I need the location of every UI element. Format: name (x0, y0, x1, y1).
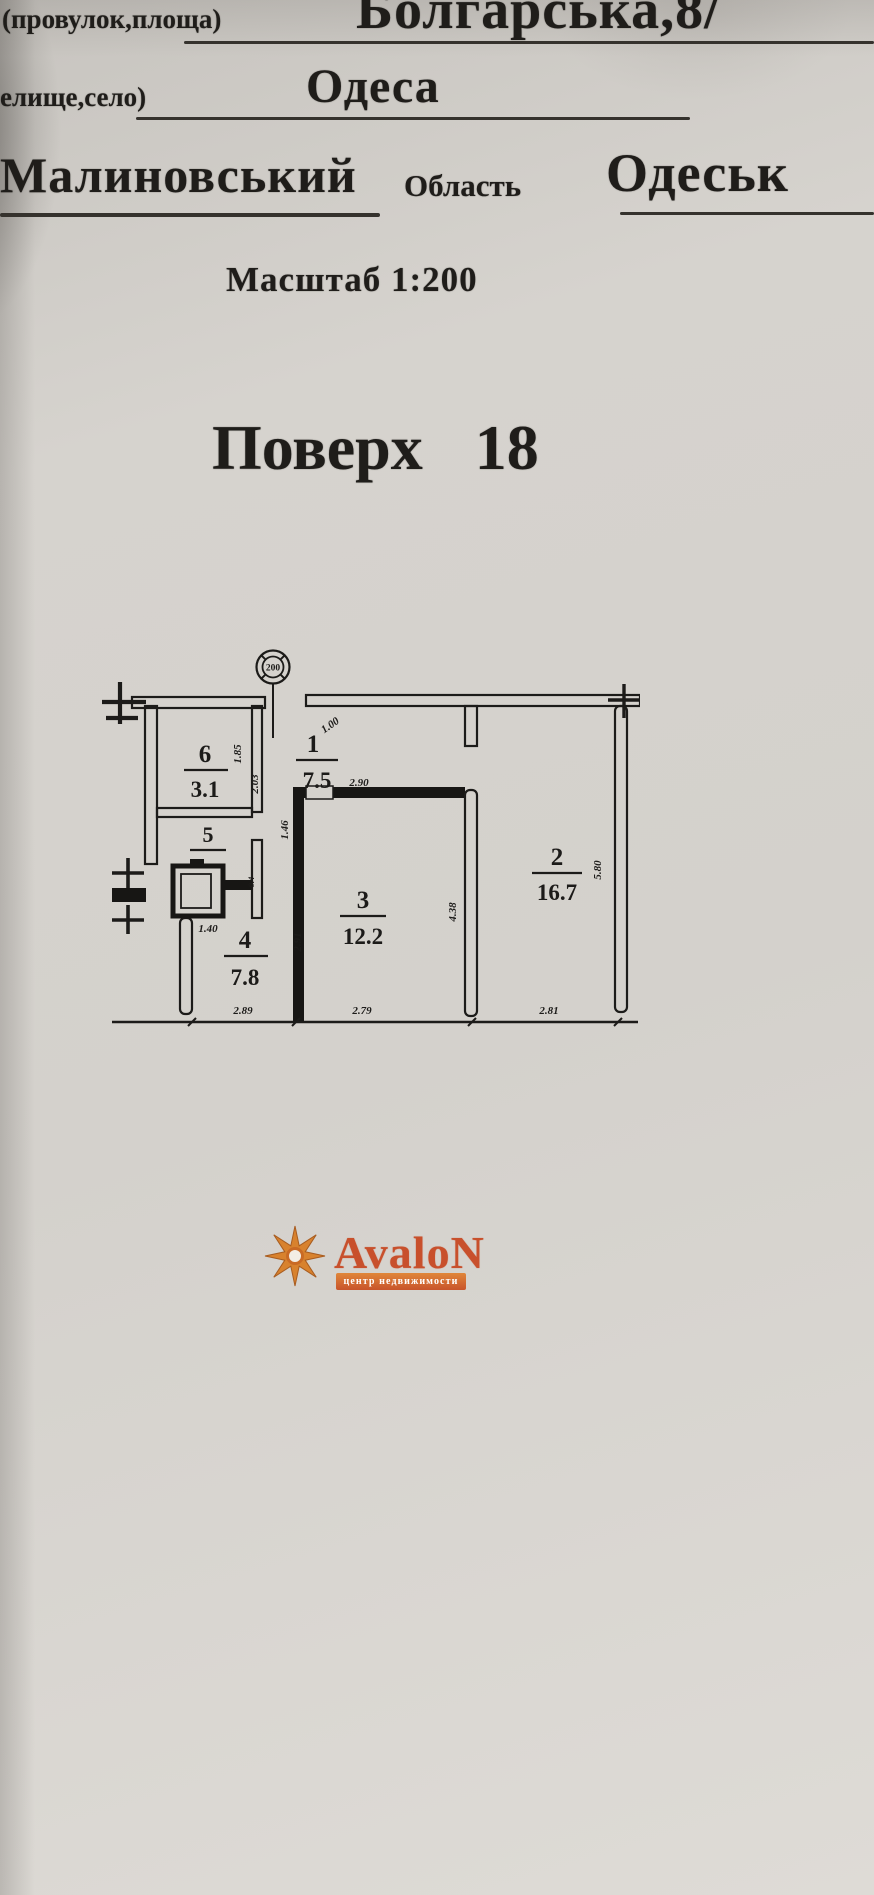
dim-2-89: 2.89 (232, 1005, 253, 1017)
partition-corridor-upper (252, 706, 262, 812)
dim-2-79: 2.79 (351, 1005, 372, 1017)
dim-4-38: 4.38 (447, 902, 459, 923)
room-2-number: 2 (551, 844, 564, 871)
dim-1-00: 1.00 (319, 715, 342, 736)
room-1-number: 1 (307, 731, 320, 758)
floor-heading: Поверх 18 (212, 416, 539, 480)
district-value: Малиновський (0, 150, 357, 200)
scale-text: Масштаб 1:200 (226, 262, 478, 297)
compass-star-icon (263, 1224, 327, 1288)
dim-1-85: 1.85 (232, 744, 244, 764)
scanned-document-page: (провулок,площа) Болгарська,8/ елище,сел… (0, 0, 874, 1895)
room-4-number: 4 (239, 927, 252, 954)
floor-number: 18 (475, 416, 539, 480)
address-underline (184, 41, 874, 44)
entry-door-block (112, 888, 146, 902)
city-underline (136, 117, 690, 120)
dim-2-91: 2.91 (292, 932, 304, 952)
stamp-value: 200 (266, 664, 281, 674)
room2-divider-stub (465, 706, 477, 746)
entry-cross-bottom (112, 905, 144, 934)
region-underline (620, 212, 874, 215)
address-field-label: (провулок,площа) (2, 6, 221, 33)
right-wall (615, 706, 627, 1012)
dim-2-03: 2.03 (249, 774, 261, 795)
room-3-number: 3 (357, 887, 370, 914)
address-field-value: Болгарська,8/ (356, 0, 721, 38)
dim-1-40: 1.40 (198, 923, 218, 935)
region-field-value: Одеськ (606, 146, 789, 200)
brand-name: AvaloN (334, 1226, 485, 1279)
top-wall-right (306, 695, 640, 706)
city-field-value: Одеса (306, 63, 440, 111)
district-underline (0, 213, 380, 217)
brand-tagline-banner: центр недвижимости (336, 1273, 466, 1290)
entry-cross-top (112, 858, 144, 888)
bathroom-door-stub (190, 859, 204, 867)
room-4-area: 7.8 (231, 965, 260, 990)
brand-tagline: центр недвижимости (344, 1276, 459, 1287)
city-field-label: елище,село) (0, 84, 146, 111)
left-wall-lower (180, 918, 192, 1014)
region-field-label: Область (404, 170, 521, 201)
room6-bottom-wall (157, 808, 252, 817)
room-6-area: 3.1 (191, 777, 220, 802)
dim-0-4: 0.4 (246, 877, 256, 888)
room-3-area: 12.2 (343, 924, 383, 949)
room-2-area: 16.7 (537, 880, 577, 905)
dim-5-80: 5.80 (592, 860, 604, 880)
survey-cross-right (608, 684, 640, 718)
room3-left-wall (293, 787, 304, 1022)
floor-label: Поверх (212, 416, 423, 480)
room-6-number: 6 (199, 741, 212, 768)
bathtub (181, 874, 211, 908)
survey-cross-left (102, 682, 146, 724)
room-5-number: 5 (203, 822, 214, 847)
room-1-area: 7.5 (303, 768, 332, 793)
dim-2-90: 2.90 (348, 777, 369, 789)
floor-plan: 200 (60, 540, 640, 1040)
dim-1-46: 1.46 (279, 820, 291, 840)
dim-2-81: 2.81 (538, 1005, 558, 1017)
room2-divider-wall (465, 790, 477, 1016)
left-wall-upper (145, 706, 157, 864)
